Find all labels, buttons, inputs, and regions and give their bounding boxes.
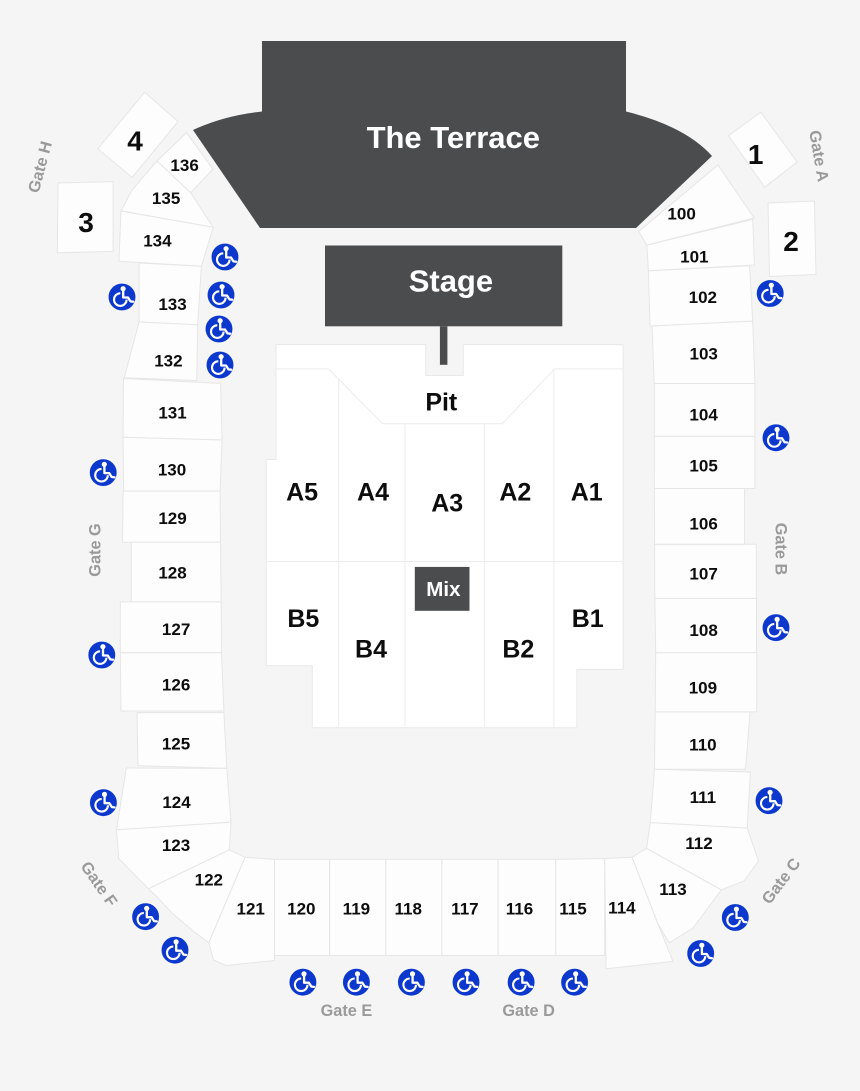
svg-text:A1: A1 (571, 478, 603, 506)
svg-text:135: 135 (152, 189, 180, 208)
svg-text:118: 118 (394, 900, 421, 919)
svg-text:110: 110 (689, 736, 716, 755)
svg-text:126: 126 (162, 676, 190, 695)
svg-text:2: 2 (783, 226, 799, 257)
svg-text:122: 122 (195, 870, 223, 889)
svg-text:105: 105 (689, 457, 717, 476)
svg-text:127: 127 (162, 620, 190, 639)
svg-text:117: 117 (451, 900, 478, 919)
svg-text:106: 106 (689, 515, 717, 534)
svg-text:3: 3 (78, 207, 94, 238)
svg-text:129: 129 (158, 509, 186, 528)
svg-text:132: 132 (154, 351, 182, 370)
svg-text:B4: B4 (355, 635, 387, 663)
svg-text:Stage: Stage (409, 264, 493, 299)
svg-text:119: 119 (343, 900, 370, 919)
svg-text:Mix: Mix (426, 578, 461, 601)
svg-text:123: 123 (162, 836, 190, 855)
svg-text:103: 103 (690, 344, 718, 363)
svg-text:A2: A2 (499, 478, 531, 506)
svg-text:108: 108 (689, 621, 717, 640)
svg-text:101: 101 (680, 247, 708, 266)
svg-text:136: 136 (170, 156, 198, 175)
svg-text:133: 133 (158, 295, 186, 314)
svg-text:Gate E: Gate E (321, 1002, 373, 1020)
svg-text:The Terrace: The Terrace (367, 120, 540, 155)
svg-text:A5: A5 (286, 478, 318, 506)
svg-text:115: 115 (559, 900, 586, 919)
svg-text:113: 113 (659, 880, 686, 899)
svg-text:A4: A4 (357, 478, 389, 506)
svg-text:128: 128 (158, 564, 186, 583)
svg-text:Gate B: Gate B (772, 523, 790, 576)
svg-text:120: 120 (287, 900, 315, 919)
svg-text:111: 111 (690, 788, 717, 807)
svg-text:100: 100 (667, 205, 695, 224)
svg-text:104: 104 (689, 406, 718, 425)
svg-text:A3: A3 (431, 490, 463, 518)
svg-text:130: 130 (158, 460, 186, 479)
svg-text:134: 134 (143, 231, 172, 250)
svg-text:B2: B2 (502, 635, 534, 663)
svg-text:112: 112 (685, 834, 712, 853)
svg-text:109: 109 (689, 679, 717, 698)
svg-text:Gate D: Gate D (502, 1002, 555, 1020)
svg-text:Pit: Pit (425, 388, 458, 416)
svg-text:107: 107 (689, 565, 717, 584)
svg-text:121: 121 (237, 900, 265, 919)
svg-text:1: 1 (748, 139, 764, 170)
svg-text:131: 131 (158, 404, 186, 423)
svg-text:Gate G: Gate G (87, 523, 105, 576)
svg-text:102: 102 (689, 288, 717, 307)
svg-text:4: 4 (127, 125, 143, 156)
svg-text:114: 114 (608, 899, 636, 918)
svg-text:124: 124 (162, 793, 191, 812)
svg-text:B5: B5 (287, 605, 319, 633)
svg-text:125: 125 (162, 734, 190, 753)
svg-text:116: 116 (506, 900, 533, 919)
svg-text:B1: B1 (572, 605, 604, 633)
